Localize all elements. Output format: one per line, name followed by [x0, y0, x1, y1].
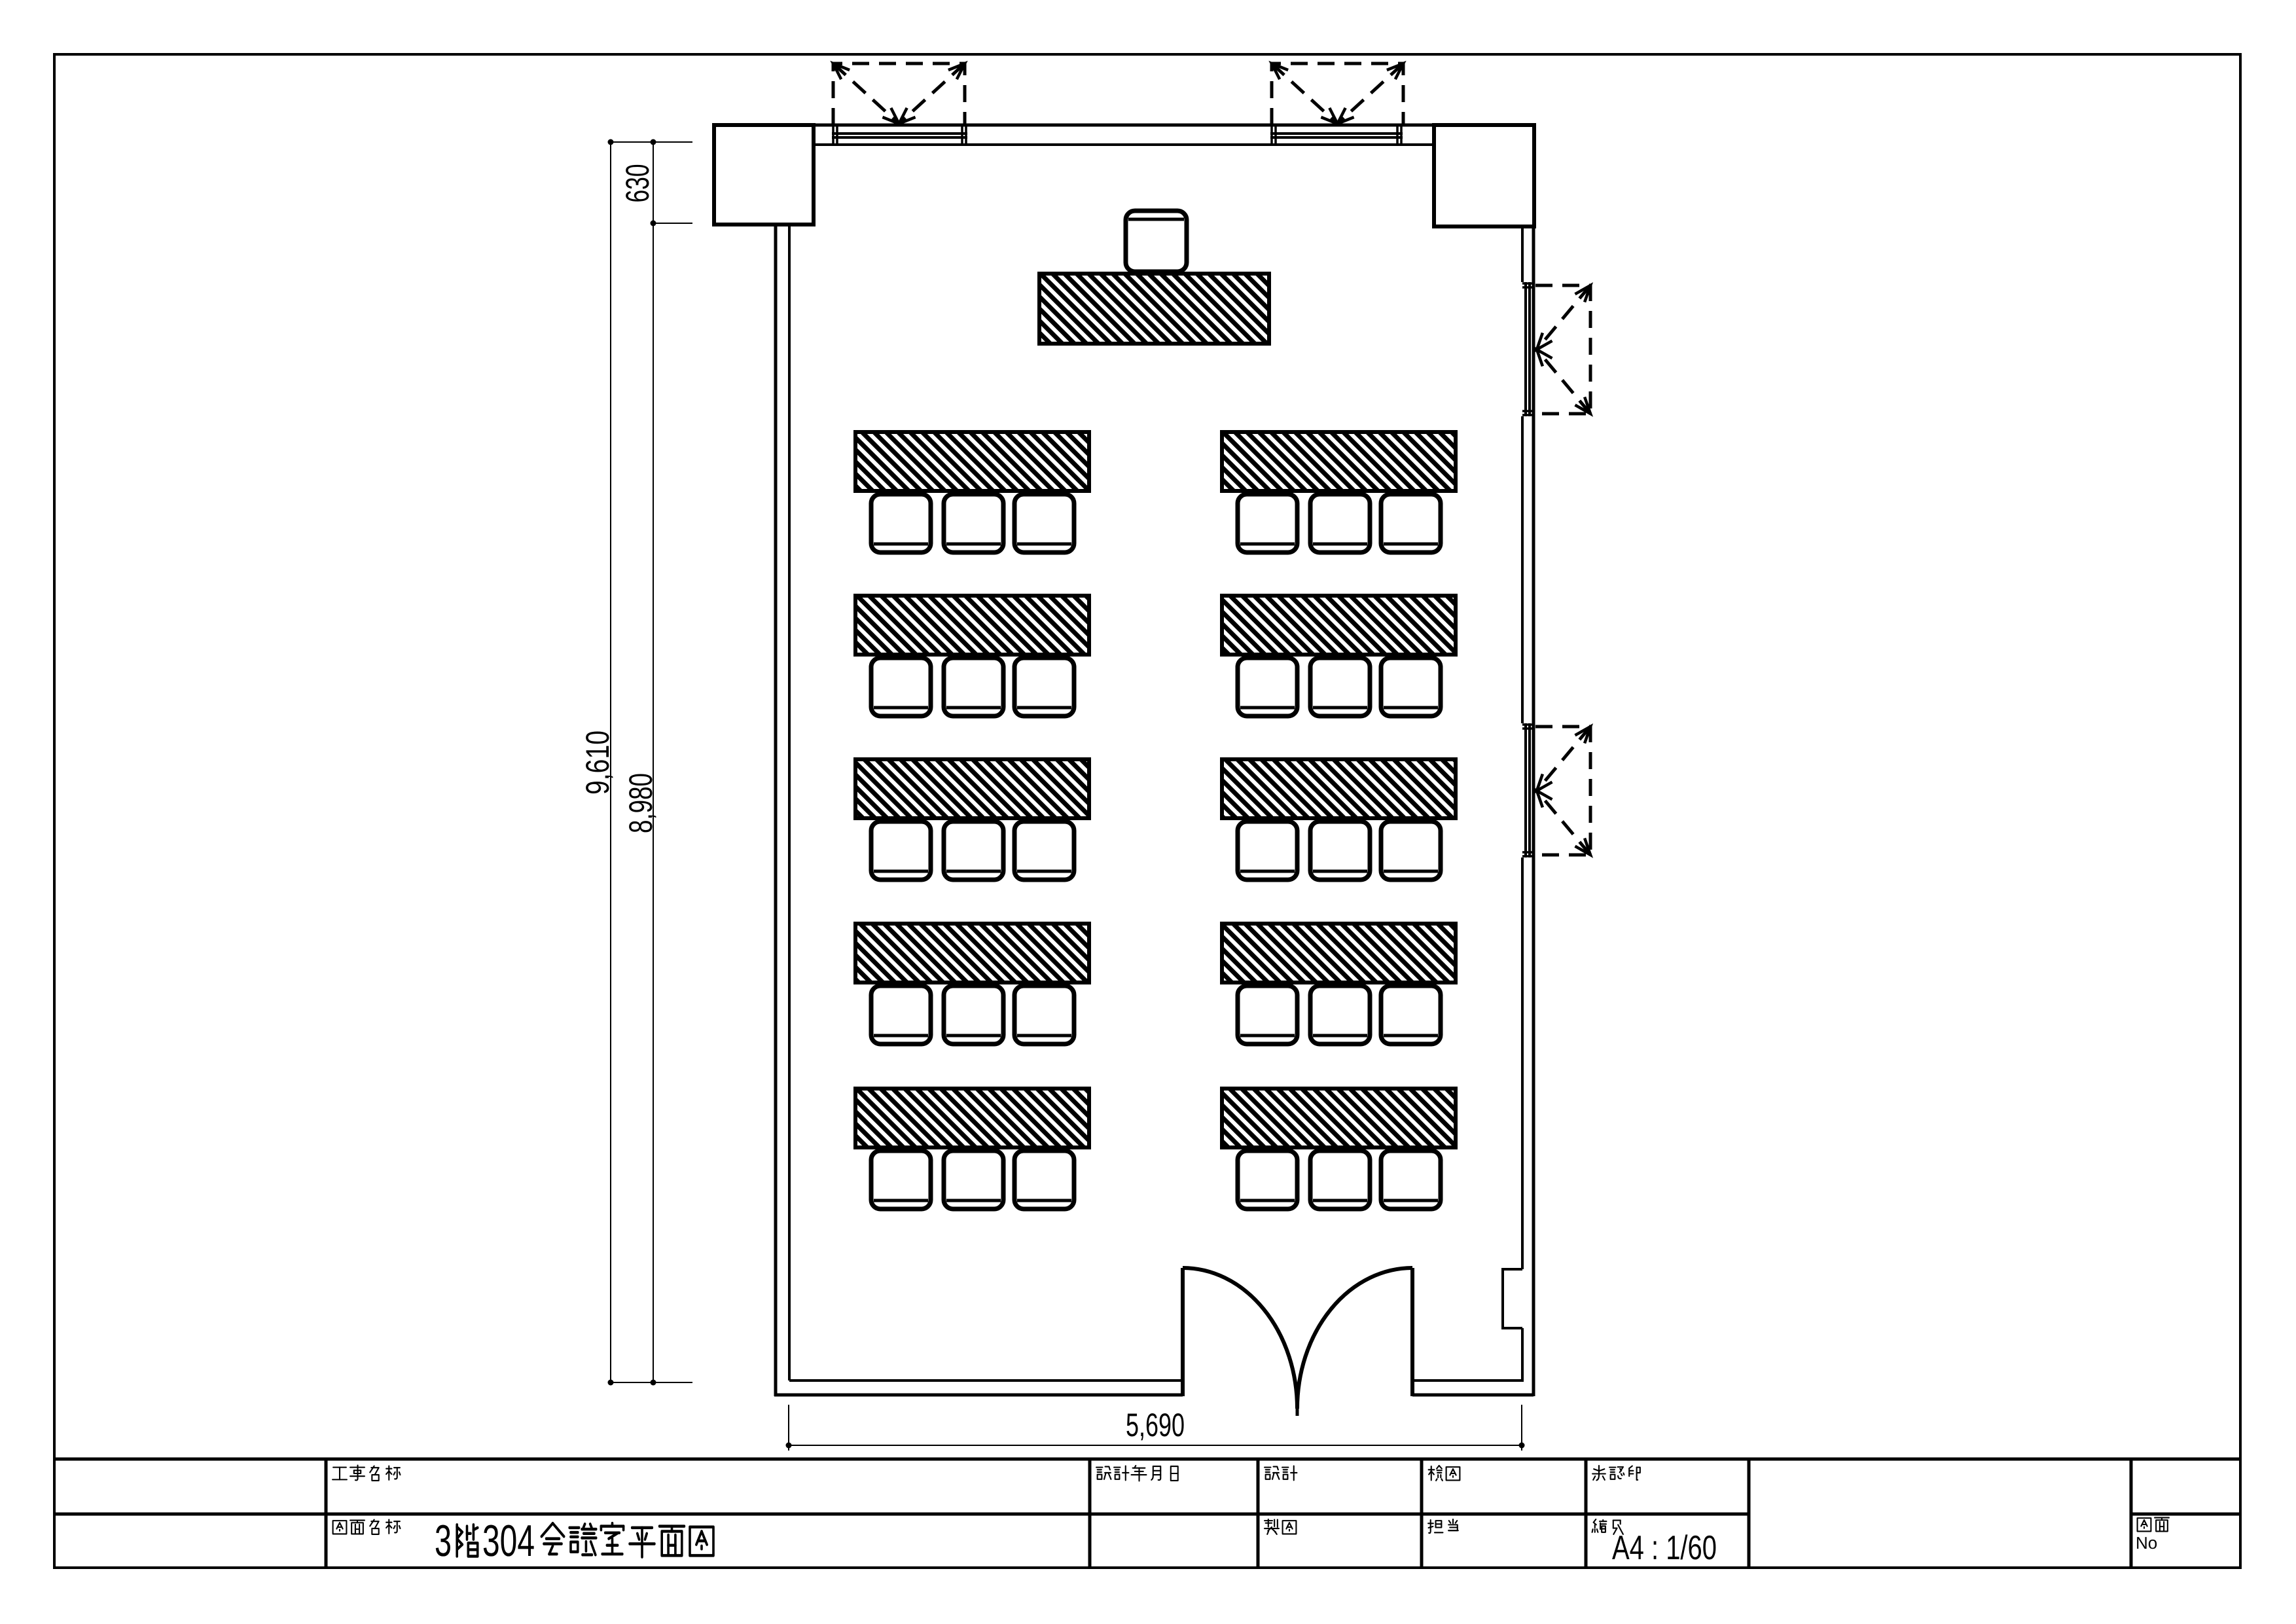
- svg-text:9,610: 9,610: [579, 731, 616, 795]
- svg-text:5,690: 5,690: [1126, 1407, 1185, 1443]
- svg-text:630: 630: [619, 164, 656, 203]
- svg-text:No: No: [2136, 1533, 2157, 1553]
- svg-text:A4 : 1/60: A4 : 1/60: [1612, 1529, 1717, 1567]
- svg-text:3: 3: [435, 1516, 452, 1566]
- svg-text:304: 304: [482, 1516, 535, 1566]
- svg-text:8,980: 8,980: [622, 773, 659, 833]
